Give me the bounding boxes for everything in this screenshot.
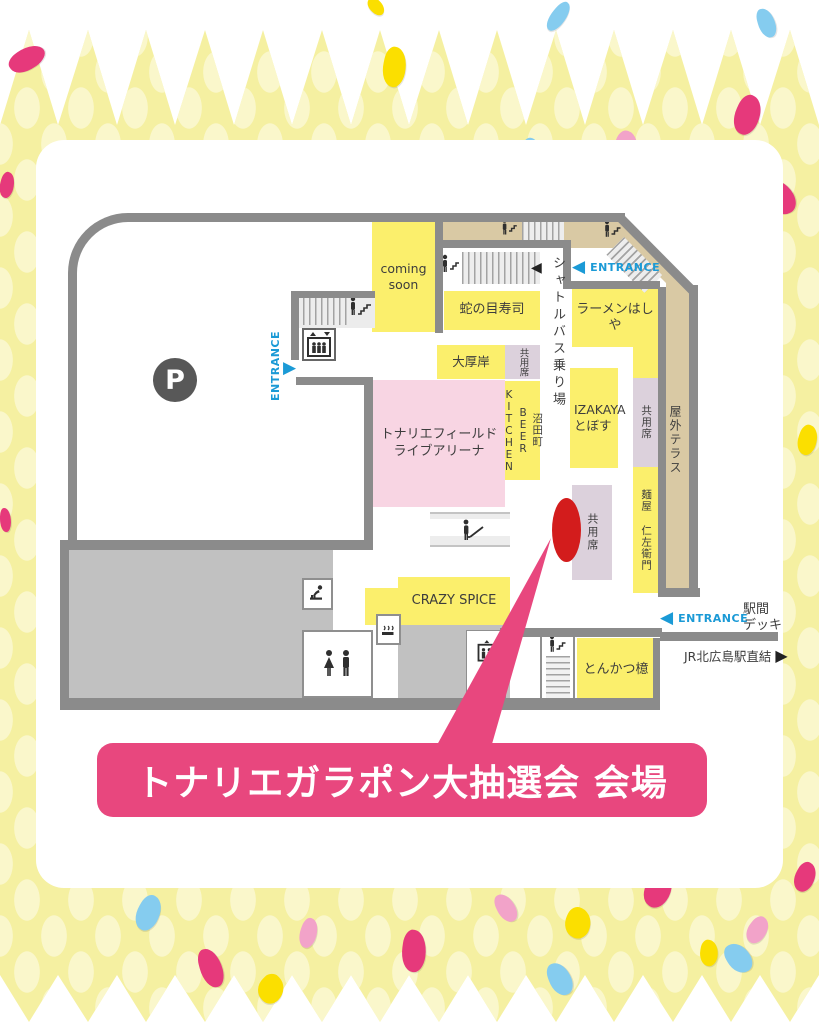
confetti-piece — [364, 0, 388, 18]
stair-treads — [546, 656, 570, 698]
room-label-line2: とぼす — [574, 418, 612, 434]
elevator-northwest — [302, 328, 336, 361]
wall-north — [140, 213, 625, 222]
wall-coming-soon-east — [435, 213, 443, 333]
wall-terrace-inner — [658, 287, 666, 588]
baby-room — [302, 578, 333, 610]
jr-link-label: JR北広島駅直結 — [684, 646, 771, 665]
room-label-line2: ライブアリーナ — [393, 444, 484, 460]
room-coming-soon: coming soon — [372, 221, 435, 332]
room-label: coming soon — [376, 261, 432, 292]
room-live-arena: トナリエフィールド ライブアリーナ — [373, 380, 505, 507]
room-label: とんかつ檍 — [583, 662, 648, 678]
wall-west-lower — [60, 540, 69, 710]
entrance-arrow-icon: ◀ — [660, 610, 673, 627]
room-janome-sushi: 蛇の目寿司 — [444, 291, 540, 330]
room-daiakkeshi: 大厚岸 — [437, 345, 505, 379]
confetti-piece — [542, 0, 575, 34]
wall-south — [60, 698, 660, 710]
room-label: 共用席 — [517, 348, 529, 377]
baby-changing-icon — [307, 584, 329, 604]
room-numata-beer-kitchen: 沼田町 BEER KITCHEN — [505, 381, 540, 480]
room-tonkatsu-aoki: とんかつ檍 — [577, 638, 655, 702]
room-shared-seat-mid: 共用席 — [633, 378, 658, 467]
event-banner: トナリエガラポン大抽選会 会場 — [97, 743, 707, 817]
room-izakaya-tobosu: IZAKAYA とぼす — [570, 368, 618, 468]
wall-stairs-top — [291, 291, 375, 298]
entrance-west-label: ENTRANCE — [269, 321, 283, 411]
event-location-marker — [552, 498, 581, 562]
wall-terrace-bottom — [658, 588, 700, 597]
wall-tonkatsu-east — [653, 638, 660, 702]
confetti-piece — [754, 6, 778, 39]
station-deck-label: 駅間 デッキ — [743, 602, 782, 635]
entrance-southeast: ◀ ENTRANCE — [660, 610, 748, 627]
entrance-arrow-icon: ◀ — [572, 259, 585, 276]
jr-link-arrow-icon: ▶ — [775, 648, 787, 664]
room-label-line1: IZAKAYA — [574, 402, 626, 418]
restrooms — [302, 630, 373, 698]
room-shared-seat-top: 共用席 — [505, 345, 540, 379]
stairs-person-icon — [547, 634, 569, 654]
jr-link: JR北広島駅直結 ▶ — [684, 646, 788, 665]
room-label: 沼田町 BEER KITCHEN — [502, 389, 543, 473]
room-label-line1: トナリエフィールド — [381, 427, 498, 443]
room-label: 共用席 — [585, 513, 599, 552]
entrance-west-arrow-icon: ▶ — [283, 360, 296, 377]
event-banner-label: トナリエガラポン大抽選会 会場 — [136, 754, 668, 806]
elevator-icon — [306, 331, 332, 358]
parking-icon: P — [153, 358, 197, 402]
entrance-label: ENTRANCE — [590, 261, 660, 274]
wall-west — [68, 278, 77, 542]
room-label: CRAZY SPICE — [412, 593, 497, 609]
room-label: ラーメンはしや — [572, 302, 658, 335]
outdoor-stair-treads — [522, 222, 564, 242]
wall-ramen-top — [565, 281, 660, 289]
room-label: 麺屋 仁左衛門 — [639, 489, 652, 571]
entrance-label: ENTRANCE — [678, 612, 748, 625]
room-ramen-hashiya-ext — [633, 347, 658, 378]
wall-east — [689, 285, 698, 593]
stairs-shuttle — [462, 252, 540, 284]
room-label: 大厚岸 — [452, 354, 490, 370]
wall-backyard-top — [60, 540, 373, 550]
entrance-northeast: ◀ ENTRANCE — [572, 259, 660, 276]
shuttle-arrow-left-icon: ◀ — [531, 261, 542, 275]
smoking-icon — [380, 622, 398, 638]
restroom-icon — [318, 649, 358, 679]
wall-stairs-left — [291, 292, 299, 360]
stair-treads — [303, 295, 349, 325]
shuttle-bus-label: シャトルバス乗り場 — [548, 256, 567, 409]
room-crazy-spice: CRAZY SPICE — [398, 577, 510, 625]
room-menya-nizaemon: 麺屋 仁左衛門 — [633, 467, 658, 593]
parking-label: P — [165, 365, 185, 396]
smoking-room — [376, 614, 401, 645]
escalator-person-icon — [453, 518, 487, 542]
backyard-area — [60, 550, 333, 698]
room-label: 共用席 — [639, 405, 652, 440]
wall-hall-east — [364, 377, 373, 550]
stairs-south — [540, 630, 575, 703]
room-label: 蛇の目寿司 — [459, 302, 524, 318]
outdoor-terrace-label: 屋外テラス — [667, 405, 684, 475]
stairs-person-icon — [440, 254, 460, 274]
escalator — [430, 512, 510, 547]
screenshot-stage: coming soon 蛇の目寿司 ラーメンはしや 大厚岸 共用席 沼田町 BE… — [0, 0, 819, 1024]
room-ramen-hashiya: ラーメンはしや — [572, 289, 658, 347]
stairs-person-icon — [348, 296, 372, 318]
wall-inner-north — [443, 240, 565, 248]
wall-hall-north — [296, 377, 373, 385]
